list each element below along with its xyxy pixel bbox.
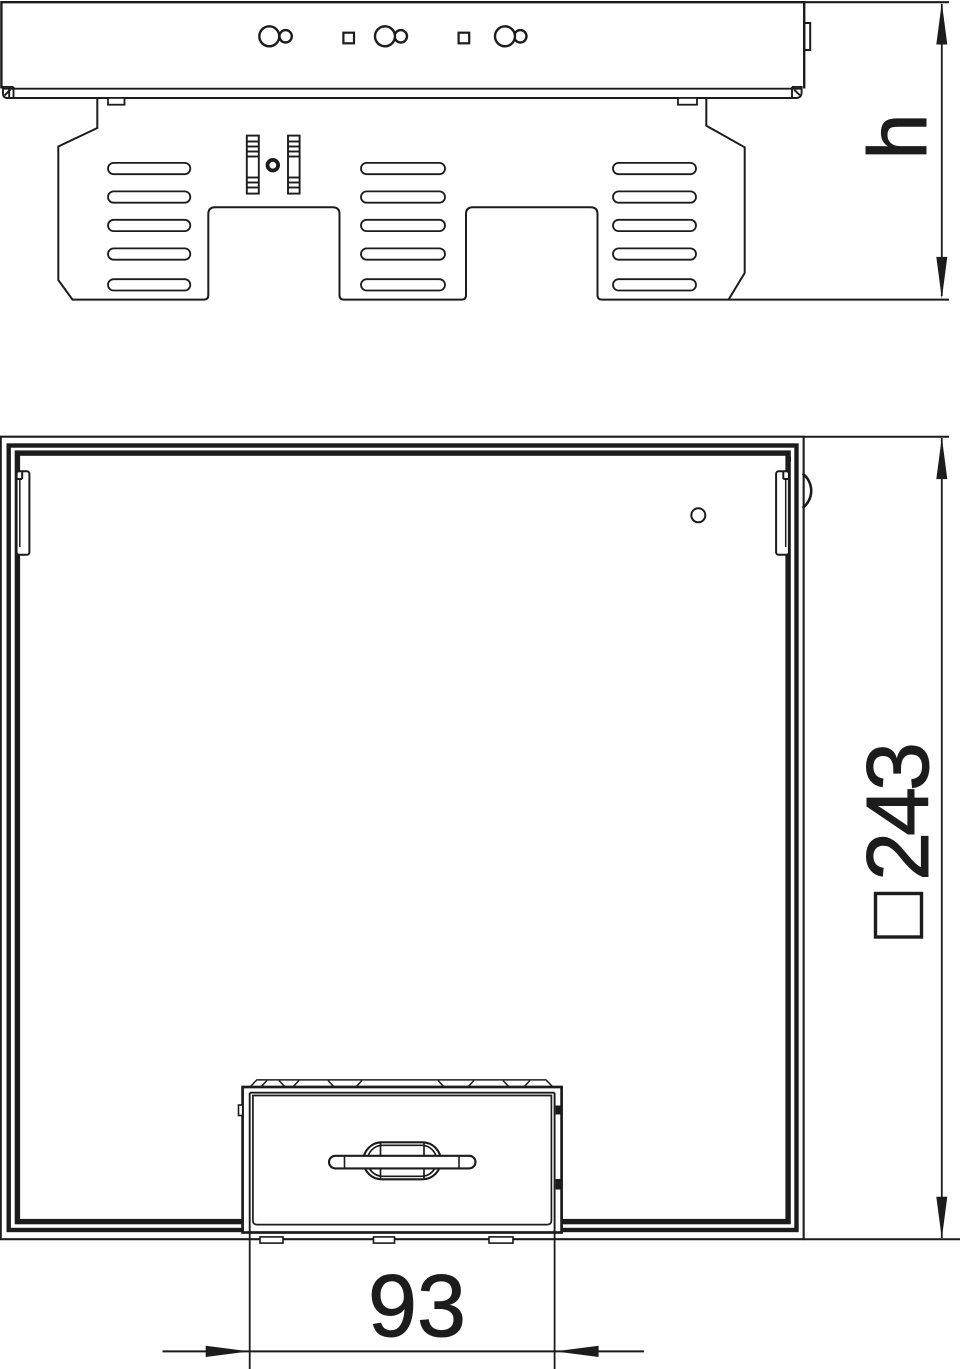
svg-text:h: h xyxy=(851,113,944,159)
svg-text:243: 243 xyxy=(848,745,947,881)
svg-text:93: 93 xyxy=(368,1256,466,1355)
